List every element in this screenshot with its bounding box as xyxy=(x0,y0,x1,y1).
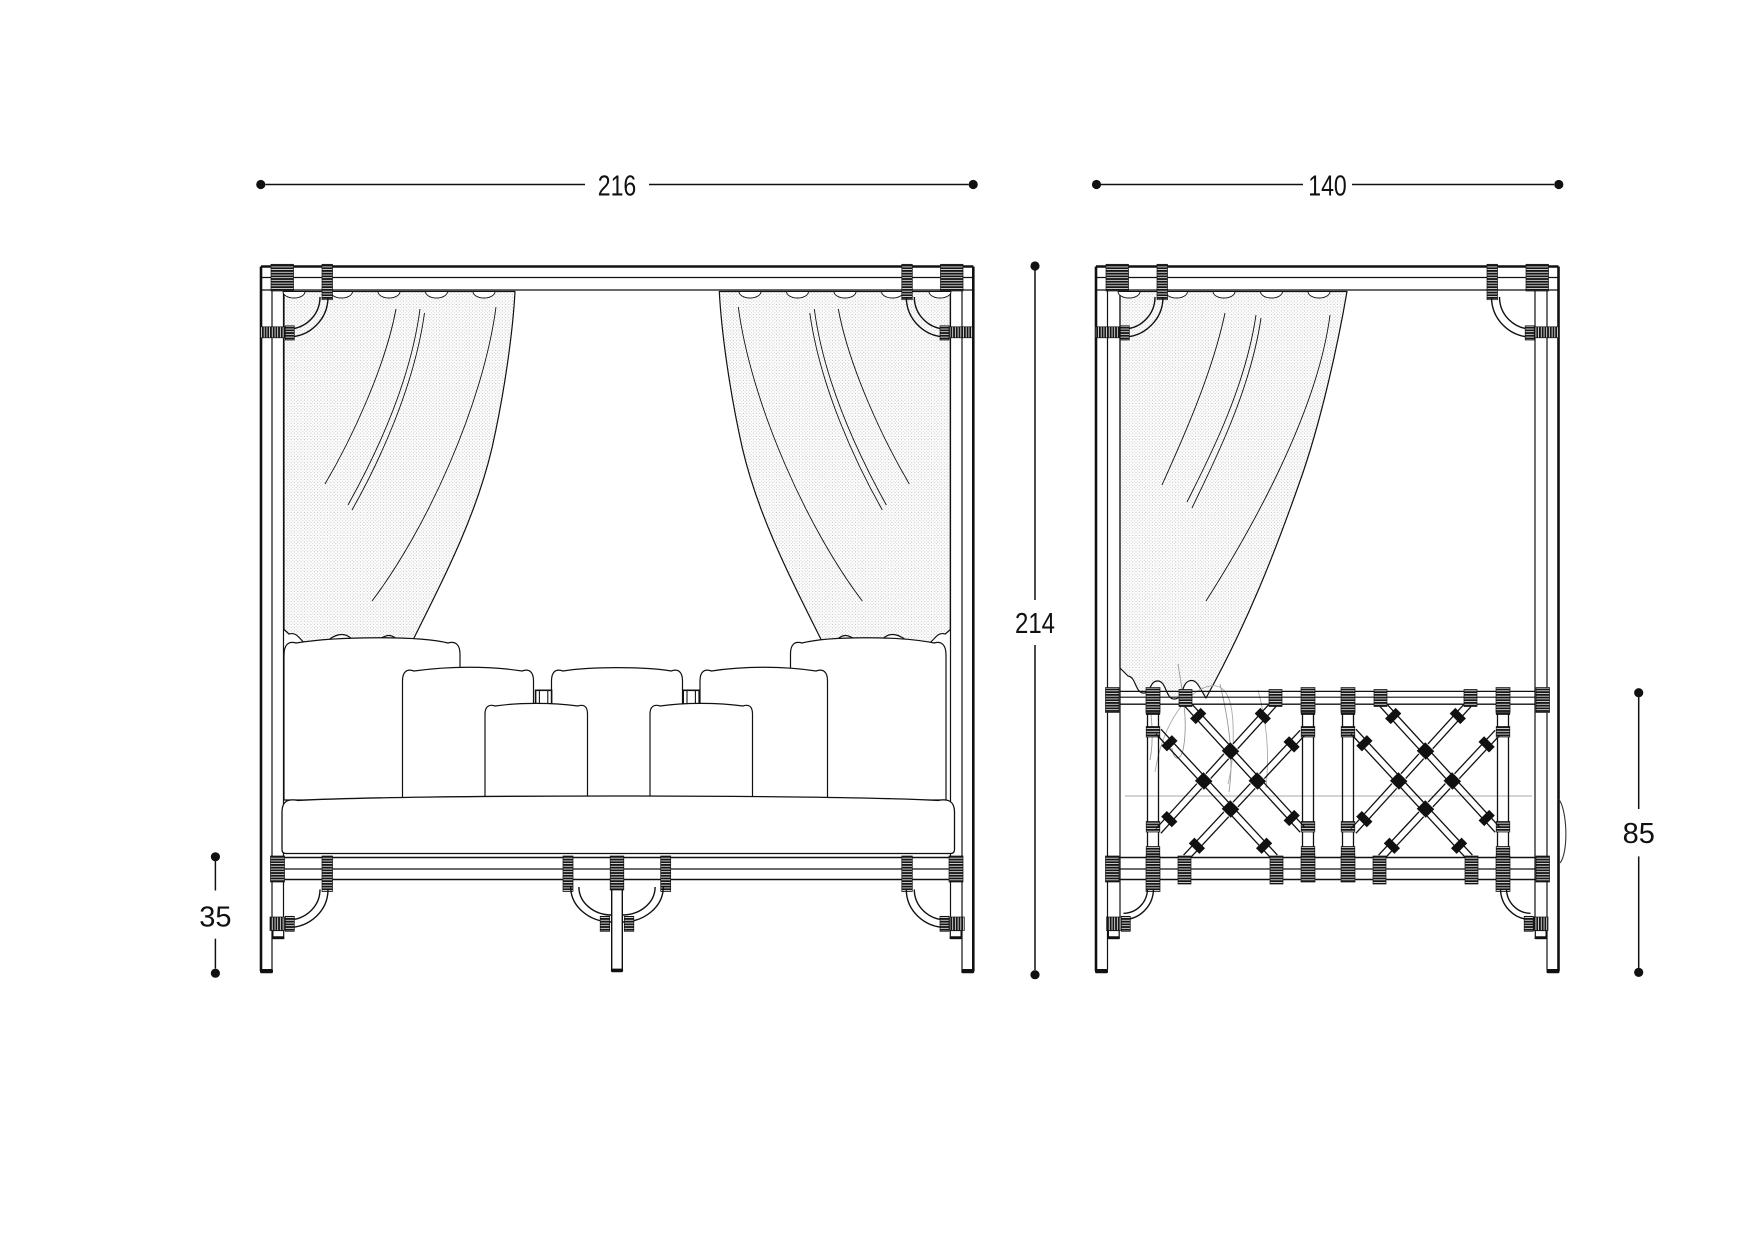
svg-text:216: 216 xyxy=(598,170,637,202)
svg-text:214: 214 xyxy=(1015,608,1055,640)
svg-text:85: 85 xyxy=(1623,818,1655,850)
svg-text:140: 140 xyxy=(1308,170,1347,202)
svg-text:35: 35 xyxy=(199,901,231,933)
